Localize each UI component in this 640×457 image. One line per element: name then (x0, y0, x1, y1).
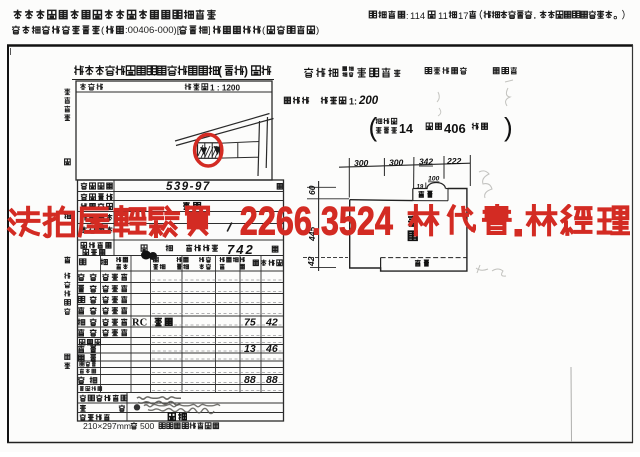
svg-text:1 : 1200: 1 : 1200 (210, 83, 240, 92)
svg-text:300: 300 (389, 157, 404, 167)
svg-text:1:: 1: (349, 97, 357, 107)
svg-text:500: 500 (140, 421, 155, 431)
svg-text:17: 17 (458, 11, 469, 22)
svg-text:]: ] (208, 25, 211, 36)
svg-text:14: 14 (399, 122, 413, 136)
svg-text:(: ( (369, 112, 378, 142)
svg-text:114: 114 (410, 11, 425, 22)
svg-text:(: ( (218, 64, 222, 78)
svg-text:19: 19 (417, 184, 424, 190)
svg-text:406: 406 (444, 121, 466, 136)
svg-text:2266.3524: 2266.3524 (240, 198, 394, 243)
svg-text:75: 75 (244, 317, 256, 329)
svg-text:42: 42 (265, 317, 278, 329)
svg-text:88: 88 (266, 374, 278, 386)
svg-text:222: 222 (446, 156, 462, 166)
svg-text:88: 88 (244, 374, 256, 386)
svg-text:100: 100 (428, 176, 440, 183)
svg-text:342: 342 (419, 157, 433, 167)
svg-text:13: 13 (244, 343, 256, 355)
svg-text:539-97: 539-97 (166, 181, 211, 193)
svg-text:): ) (504, 112, 513, 142)
svg-text:46: 46 (265, 343, 278, 355)
svg-text:60: 60 (307, 185, 317, 195)
svg-text:RC: RC (132, 318, 147, 329)
svg-text:300: 300 (354, 158, 369, 168)
svg-text:): ) (316, 25, 319, 36)
svg-text:742: 742 (227, 242, 255, 257)
svg-text:42: 42 (306, 256, 316, 267)
svg-text::00406-000)[: :00406-000)[ (125, 25, 180, 36)
svg-text:200: 200 (358, 95, 379, 107)
svg-text:210×297mm: 210×297mm (83, 421, 131, 431)
svg-text:11: 11 (438, 11, 448, 22)
svg-text::: : (406, 11, 409, 21)
svg-text:): ) (244, 64, 248, 78)
